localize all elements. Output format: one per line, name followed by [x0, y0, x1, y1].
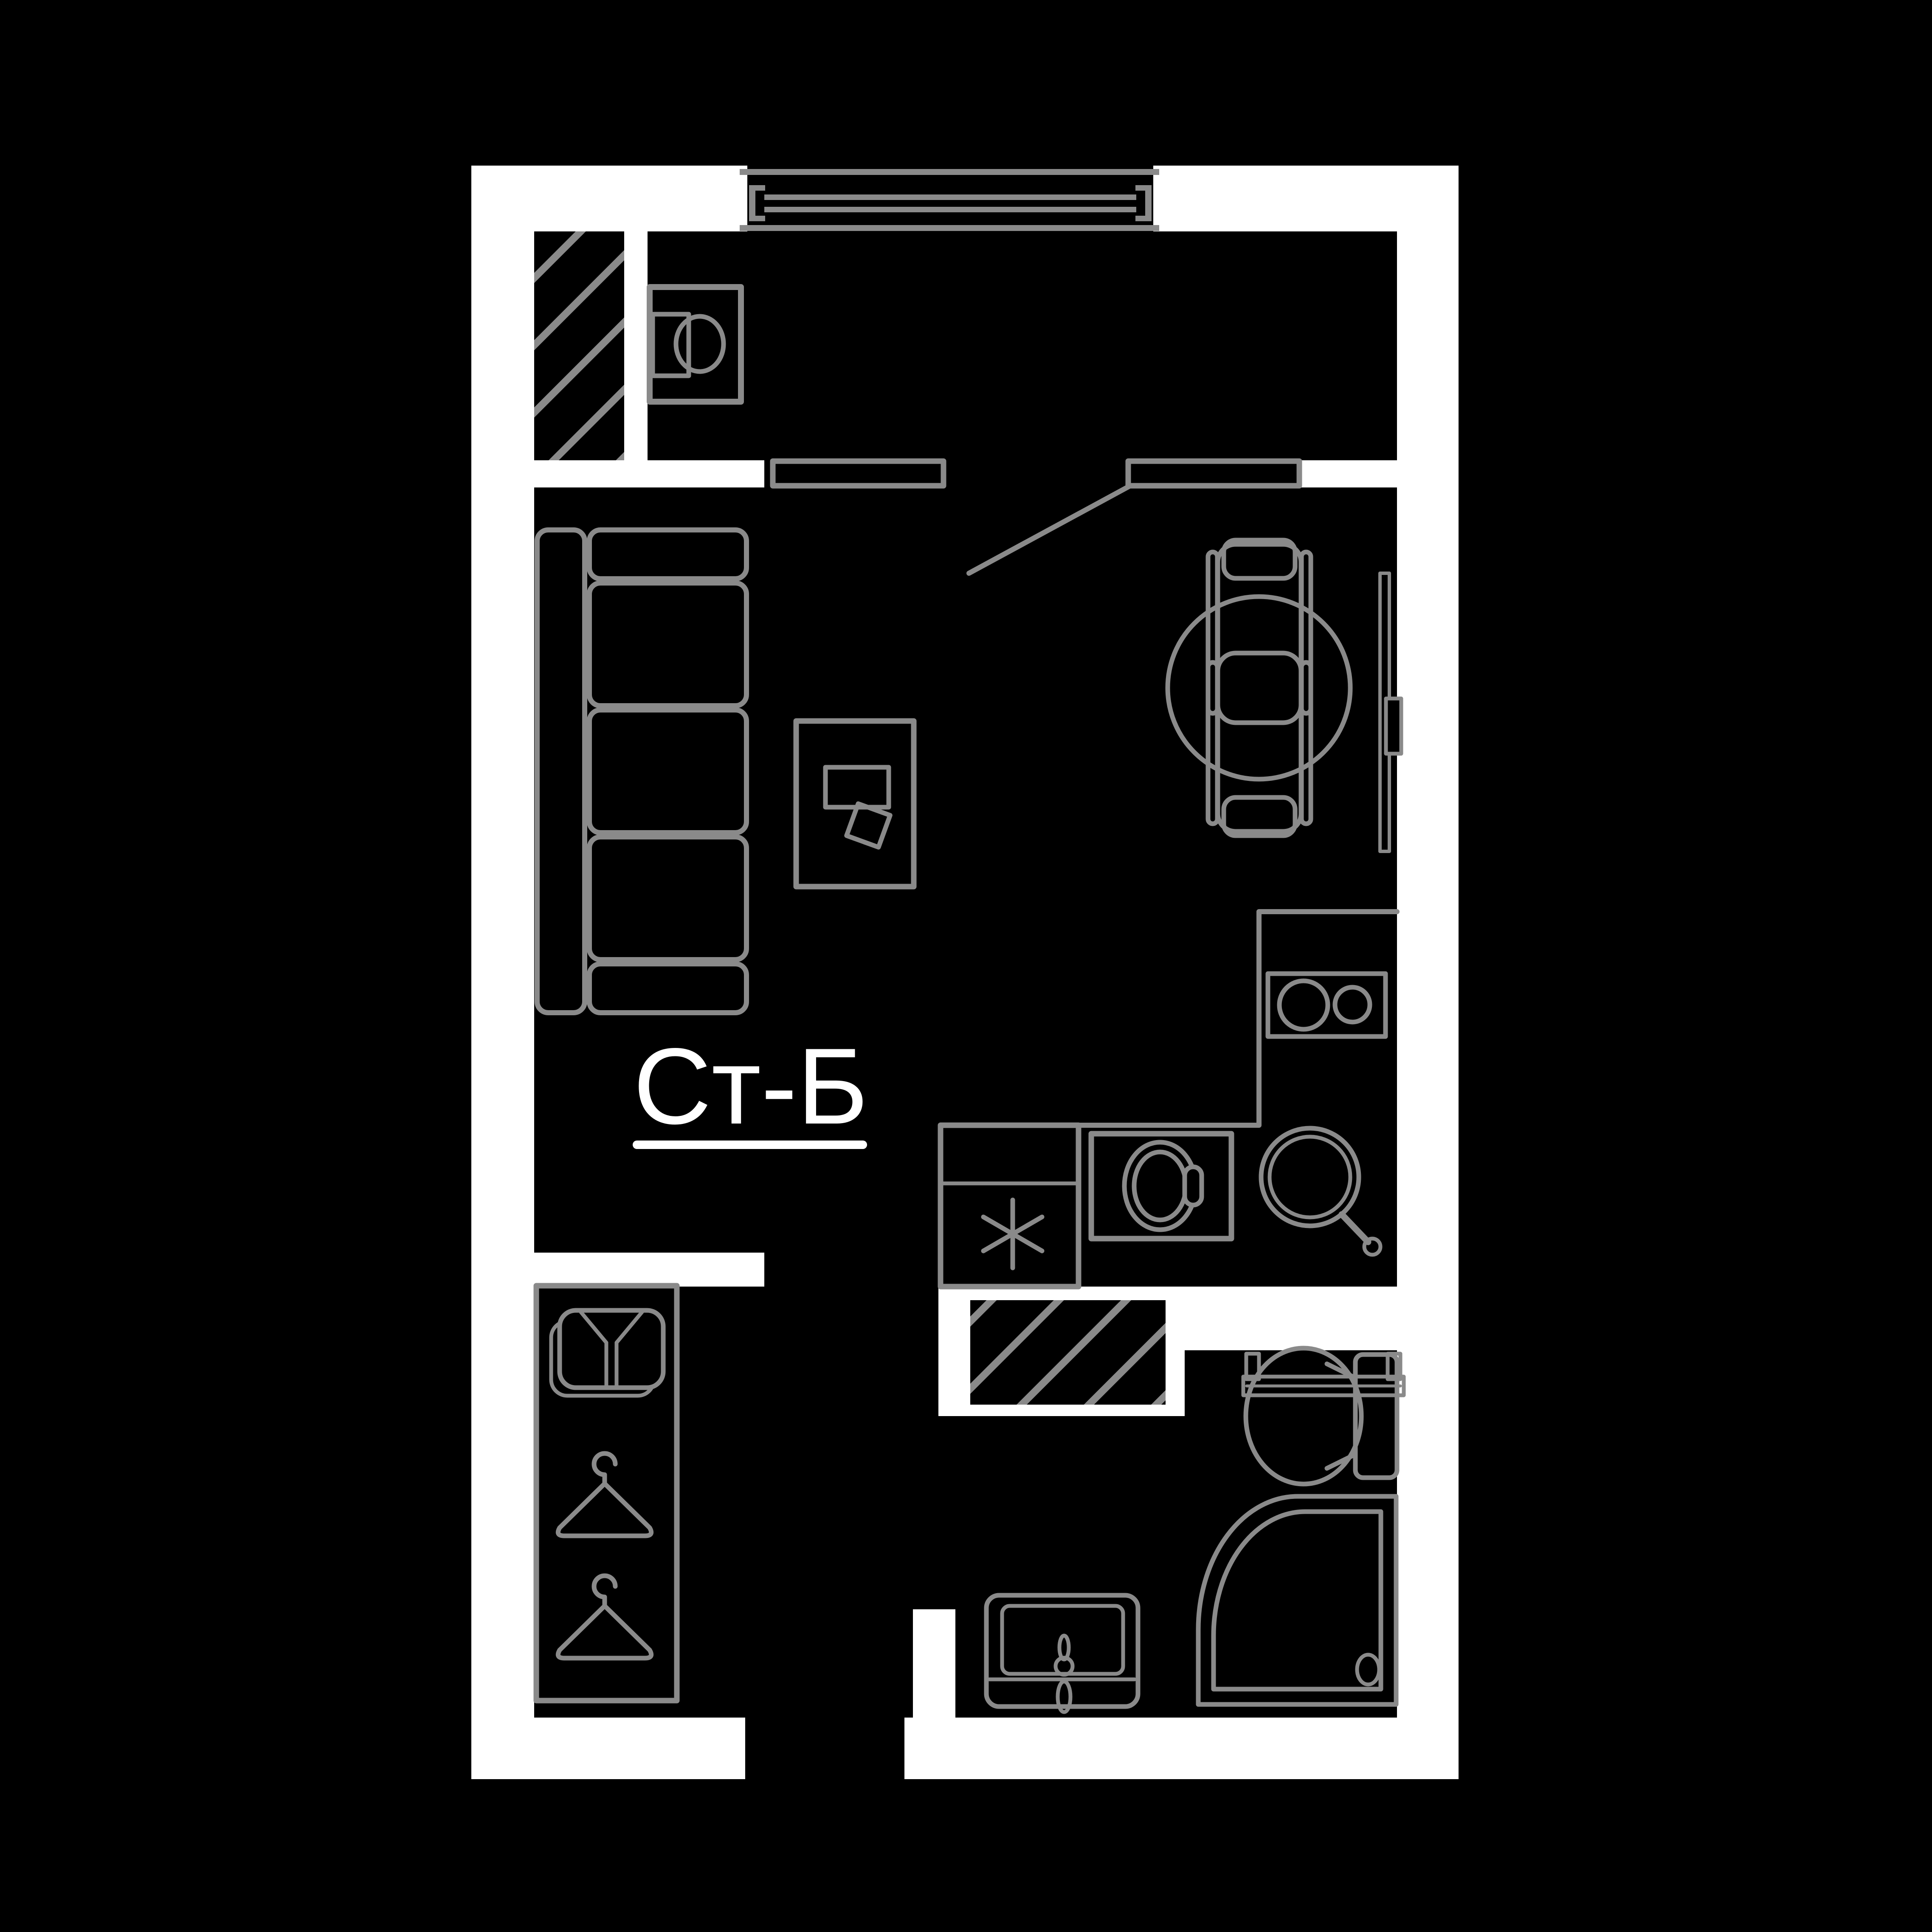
window-glass-line-1	[764, 194, 1136, 200]
window-bracket-right-top	[1135, 185, 1152, 191]
wall-left	[471, 166, 534, 1779]
door-casing-right	[1128, 461, 1299, 486]
window-inner-line	[740, 225, 1159, 231]
window-glass-line-2	[764, 207, 1136, 212]
floor-plan: Ст-Б	[0, 0, 1932, 1932]
wall-entry-right	[1301, 460, 1397, 487]
unit-label: Ст-Б	[633, 1026, 868, 1147]
window-bracket-left-top	[749, 185, 765, 191]
wall-bottom-left	[471, 1718, 745, 1779]
unit-label-underline	[633, 1141, 867, 1149]
window-bracket-left-bottom	[749, 216, 765, 221]
wall-bottom-right	[904, 1718, 1459, 1779]
wall-top-left	[471, 166, 747, 231]
wall-living-closet	[471, 1253, 764, 1287]
window-bracket-right-bottom	[1135, 216, 1152, 221]
door-casing-left	[773, 461, 943, 486]
vent-shaft-top-icon	[534, 231, 624, 460]
wall-bath-partition	[913, 1609, 955, 1779]
wall-entry-left	[534, 460, 764, 487]
wall-right	[1397, 166, 1459, 1779]
background	[0, 0, 1932, 1932]
window-outer-line	[740, 169, 1159, 175]
shirt-icon	[551, 1310, 663, 1396]
vent-shaft-bath-icon	[970, 1300, 1166, 1405]
wall-vent-strip	[624, 231, 648, 460]
